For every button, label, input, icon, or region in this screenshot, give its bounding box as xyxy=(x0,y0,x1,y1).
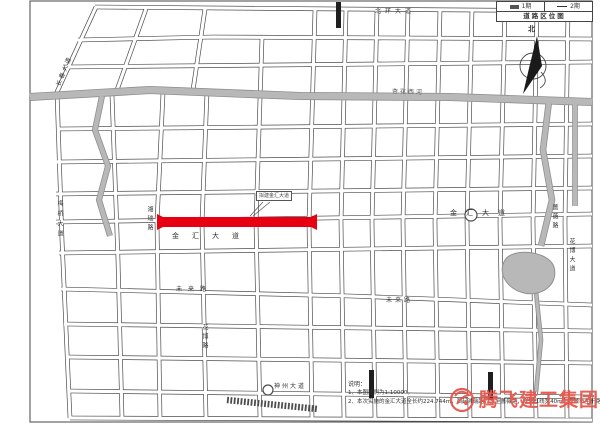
river xyxy=(95,96,110,236)
street-label: 未来路 xyxy=(386,298,413,304)
street xyxy=(70,418,592,420)
street-label: 蔷薇路 xyxy=(551,204,557,231)
street-label: 金汇大道 xyxy=(450,210,514,217)
lake xyxy=(502,252,555,294)
street-label: 花博路 xyxy=(201,324,207,351)
legend-item-label: 2期 xyxy=(570,4,580,10)
drawing-sheet: 长春大道北环大道杏花西河湘瑞路金汇大道金汇大道蔷薇路梅桥大道花博大道未来路未来路… xyxy=(0,0,600,431)
street-label: 花博大道 xyxy=(568,238,574,274)
drawing-title: 道路区位图 xyxy=(497,12,592,21)
legend-symbols-row: 1期 2期 xyxy=(497,2,592,12)
street-label: 金汇大道 xyxy=(172,233,252,240)
street xyxy=(61,289,592,305)
legend-box: 1期 2期 道路区位图 xyxy=(496,1,593,22)
street xyxy=(193,9,205,90)
street-label: 神州大道 xyxy=(274,384,306,390)
street-label: 梅桥大道 xyxy=(56,200,62,240)
street-label: 杏花西河 xyxy=(392,89,424,96)
street xyxy=(309,10,315,418)
street-label: 湘瑞路 xyxy=(146,206,152,233)
company-logo: 腾飞建工集团 xyxy=(448,386,599,414)
red-road-flare-left xyxy=(157,214,163,230)
road-callout: 拟建金汇大道 xyxy=(256,191,292,201)
street xyxy=(59,246,592,253)
north-arrow-needle xyxy=(523,36,542,94)
phase1-bar-symbol xyxy=(510,5,519,9)
company-logo-text: 腾飞建工集团 xyxy=(479,391,599,410)
legend-item-phase1: 1期 xyxy=(497,2,545,11)
north-arrow-tail xyxy=(540,72,545,88)
street xyxy=(157,93,163,418)
black-road-segment xyxy=(336,2,341,28)
hatched-road-segment xyxy=(227,400,318,409)
street xyxy=(64,324,592,331)
roundabout xyxy=(263,385,273,395)
company-logo-emblem xyxy=(448,386,476,414)
street xyxy=(112,95,122,418)
phase2-line-symbol xyxy=(557,6,567,7)
street xyxy=(117,9,146,90)
legend-item-label: 1期 xyxy=(522,4,532,10)
red-road-segment xyxy=(163,217,311,227)
legend-item-phase2: 2期 xyxy=(545,2,592,11)
north-label: 北 xyxy=(528,24,535,34)
street-label: 北环大道 xyxy=(375,9,415,15)
street-label: 未来路 xyxy=(176,287,212,293)
